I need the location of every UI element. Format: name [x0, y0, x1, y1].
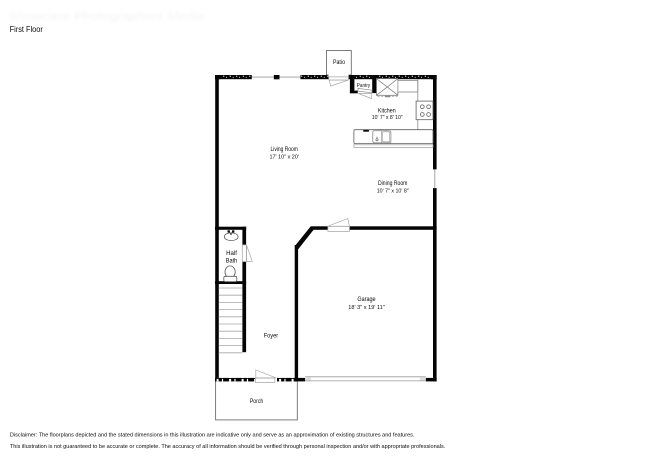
svg-text:Showcase Photographers Media: Showcase Photographers Media — [8, 9, 204, 23]
svg-text:Patio: Patio — [333, 59, 345, 66]
svg-text:Disclaimer: The floorplans dep: Disclaimer: The floorplans depicted and … — [10, 432, 415, 438]
svg-text:Bath: Bath — [226, 258, 238, 265]
svg-text:Kitchen: Kitchen — [378, 108, 396, 115]
svg-text:10' 7" x 10' 8": 10' 7" x 10' 8" — [377, 188, 409, 194]
svg-text:Half: Half — [226, 250, 237, 257]
svg-text:Garage: Garage — [357, 296, 376, 303]
svg-text:10' 7" x 8' 10": 10' 7" x 8' 10" — [372, 115, 403, 121]
svg-text:Living Room: Living Room — [271, 146, 298, 153]
svg-text:This illustration is not guara: This illustration is not guaranteed to b… — [10, 444, 445, 450]
svg-text:Foyer: Foyer — [264, 332, 278, 339]
svg-text:Porch: Porch — [250, 398, 264, 405]
svg-text:17' 10" x 20': 17' 10" x 20' — [270, 154, 299, 160]
svg-text:First Floor: First Floor — [10, 24, 43, 34]
svg-text:Dining Room: Dining Room — [378, 180, 407, 187]
svg-text:18' 3" x 19' 11": 18' 3" x 19' 11" — [348, 305, 385, 311]
